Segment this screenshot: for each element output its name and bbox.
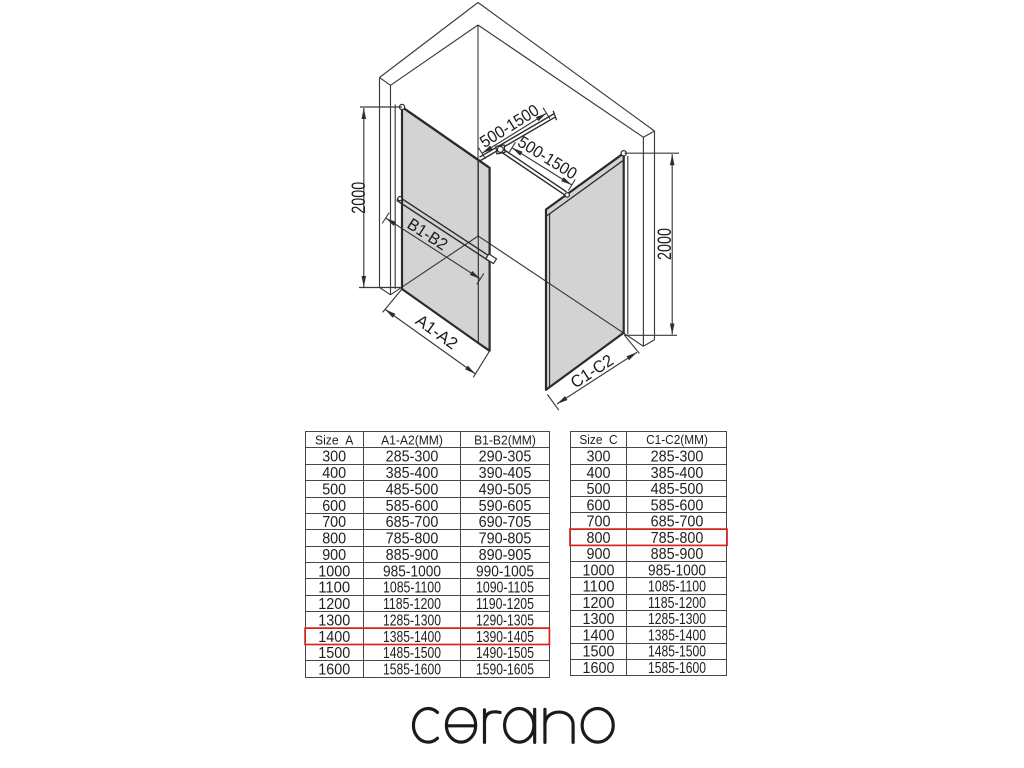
- svg-text:1585-1600: 1585-1600: [383, 662, 441, 679]
- svg-text:300: 300: [587, 449, 611, 466]
- svg-text:600: 600: [322, 498, 346, 515]
- svg-text:885-900: 885-900: [386, 547, 439, 564]
- svg-text:2000: 2000: [654, 228, 676, 260]
- svg-text:985-1000: 985-1000: [648, 562, 706, 579]
- svg-text:700: 700: [322, 514, 346, 531]
- svg-text:390-405: 390-405: [479, 465, 532, 482]
- svg-text:A1-A2(MM): A1-A2(MM): [381, 432, 443, 447]
- svg-text:485-500: 485-500: [386, 481, 439, 498]
- svg-text:1600: 1600: [318, 662, 350, 679]
- svg-text:1085-1100: 1085-1100: [648, 579, 706, 596]
- svg-text:1590-1605: 1590-1605: [476, 662, 534, 679]
- svg-text:1190-1205: 1190-1205: [476, 596, 534, 613]
- svg-text:890-905: 890-905: [479, 547, 532, 564]
- svg-text:1085-1100: 1085-1100: [383, 580, 441, 597]
- svg-text:1000: 1000: [318, 563, 350, 580]
- svg-text:1600: 1600: [583, 660, 615, 677]
- svg-text:2000: 2000: [348, 182, 370, 214]
- svg-text:1090-1105: 1090-1105: [476, 580, 534, 597]
- svg-text:700: 700: [587, 514, 611, 531]
- svg-text:1300: 1300: [318, 613, 350, 630]
- svg-text:1500: 1500: [583, 644, 615, 661]
- svg-text:285-300: 285-300: [386, 449, 439, 466]
- svg-text:990-1005: 990-1005: [476, 563, 534, 580]
- svg-text:1100: 1100: [318, 580, 350, 597]
- svg-text:B1-B2(MM): B1-B2(MM): [474, 432, 536, 447]
- svg-text:1285-1300: 1285-1300: [648, 611, 706, 628]
- svg-text:1300: 1300: [583, 611, 615, 628]
- svg-text:500: 500: [587, 481, 611, 498]
- svg-text:1485-1500: 1485-1500: [383, 645, 441, 662]
- svg-text:290-305: 290-305: [479, 449, 532, 466]
- svg-text:490-505: 490-505: [479, 481, 532, 498]
- svg-text:985-1000: 985-1000: [383, 563, 441, 580]
- svg-text:485-500: 485-500: [651, 481, 704, 498]
- svg-text:585-600: 585-600: [651, 497, 704, 514]
- svg-text:585-600: 585-600: [386, 498, 439, 515]
- svg-text:300: 300: [322, 449, 346, 466]
- svg-text:1200: 1200: [318, 596, 350, 613]
- svg-text:1500: 1500: [318, 645, 350, 662]
- svg-text:685-700: 685-700: [651, 514, 704, 531]
- svg-text:1490-1505: 1490-1505: [476, 645, 534, 662]
- svg-text:685-700: 685-700: [386, 514, 439, 531]
- svg-text:885-900: 885-900: [651, 546, 704, 563]
- svg-text:1385-1400: 1385-1400: [648, 628, 706, 645]
- svg-text:800: 800: [587, 530, 611, 547]
- svg-text:1385-1400: 1385-1400: [383, 629, 441, 646]
- svg-text:1100: 1100: [583, 579, 615, 596]
- svg-text:1585-1600: 1585-1600: [648, 660, 706, 677]
- svg-text:500: 500: [322, 481, 346, 498]
- svg-text:1285-1300: 1285-1300: [383, 613, 441, 630]
- svg-text:1200: 1200: [583, 595, 615, 612]
- svg-text:800: 800: [322, 531, 346, 548]
- svg-text:385-400: 385-400: [386, 465, 439, 482]
- svg-text:285-300: 285-300: [651, 449, 704, 466]
- svg-text:900: 900: [587, 546, 611, 563]
- svg-text:690-705: 690-705: [479, 514, 532, 531]
- svg-text:400: 400: [587, 465, 611, 482]
- svg-text:Size A: Size A: [315, 432, 354, 447]
- svg-text:785-800: 785-800: [651, 530, 704, 547]
- svg-text:Size C: Size C: [579, 432, 617, 447]
- svg-text:785-800: 785-800: [386, 531, 439, 548]
- svg-text:900: 900: [322, 547, 346, 564]
- svg-text:500-1500: 500-1500: [514, 132, 580, 183]
- svg-text:600: 600: [587, 497, 611, 514]
- svg-text:385-400: 385-400: [651, 465, 704, 482]
- svg-text:C1-C2(MM): C1-C2(MM): [646, 432, 708, 447]
- svg-text:1400: 1400: [318, 629, 350, 646]
- svg-text:790-805: 790-805: [479, 531, 532, 548]
- svg-text:590-605: 590-605: [479, 498, 532, 515]
- svg-text:1000: 1000: [583, 562, 615, 579]
- svg-text:1400: 1400: [583, 628, 615, 645]
- svg-text:1390-1405: 1390-1405: [476, 629, 534, 646]
- svg-text:400: 400: [322, 465, 346, 482]
- svg-text:1185-1200: 1185-1200: [383, 596, 441, 613]
- svg-text:1485-1500: 1485-1500: [648, 644, 706, 661]
- svg-text:1290-1305: 1290-1305: [476, 613, 534, 630]
- svg-text:1185-1200: 1185-1200: [648, 595, 706, 612]
